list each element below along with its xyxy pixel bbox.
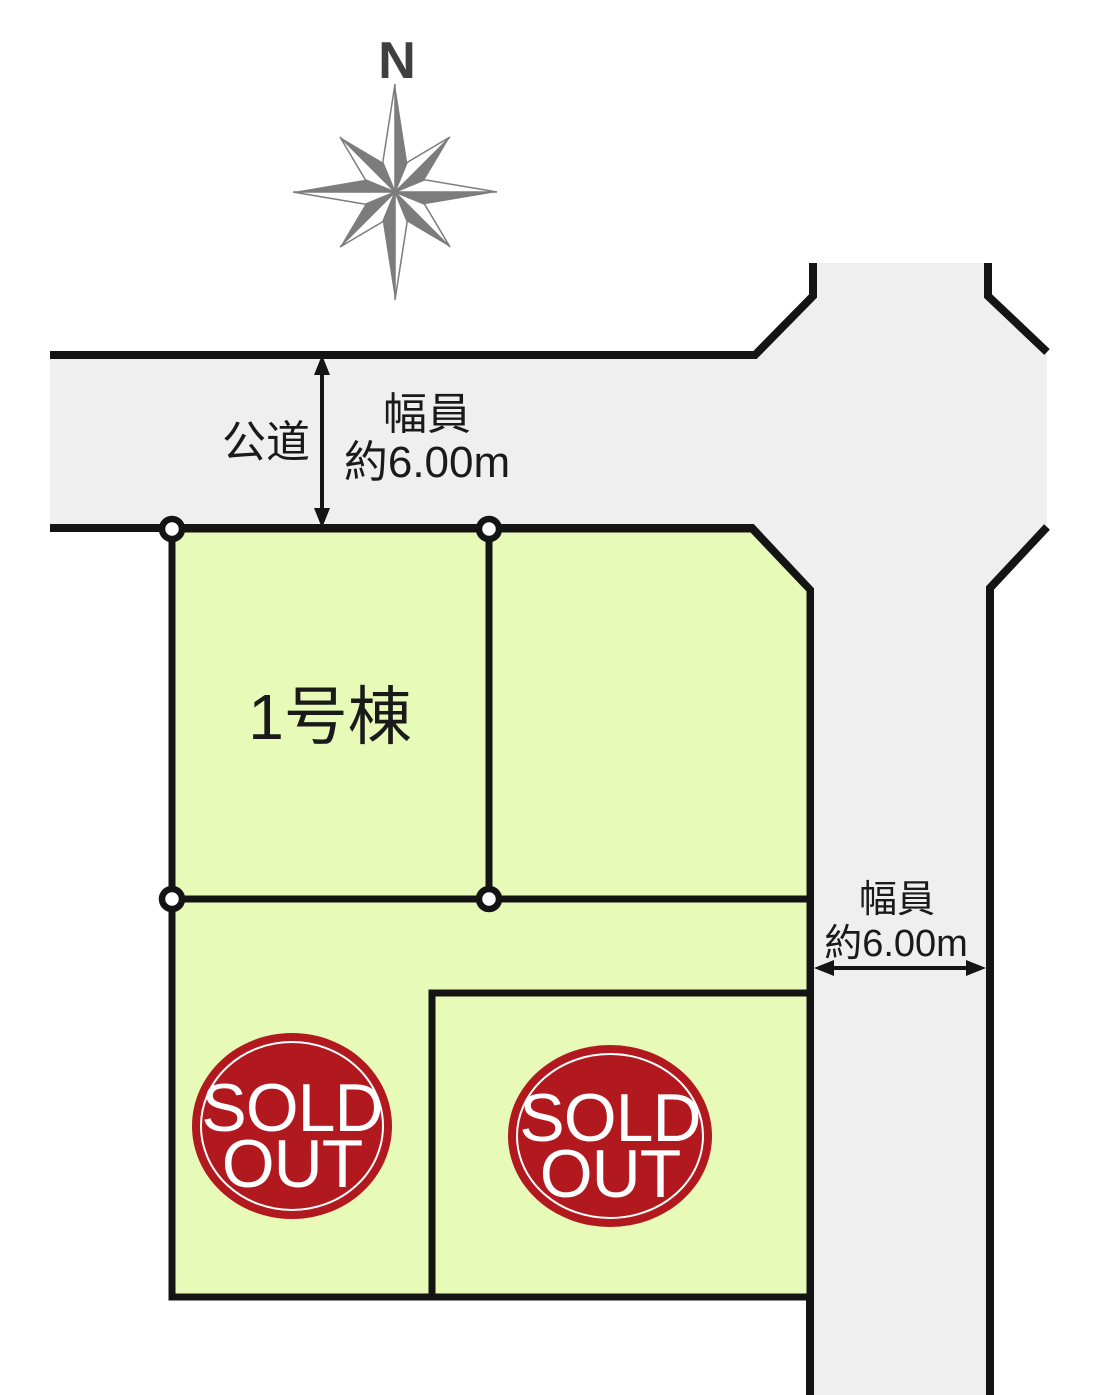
top-road-name-label: 公道 [222,418,310,467]
road-border-top-west [50,263,813,355]
sold-badge-text-line2: OUT [540,1136,681,1212]
sold-badge-lot-4: SOLD OUT [508,1045,712,1227]
lot-1: 1号棟 [172,529,489,899]
lot-2-parcel [489,529,810,899]
compass-rose-icon [293,84,497,300]
top-road-width-label-line1: 幅員 [383,390,471,439]
lot-1-label: 1号棟 [248,681,412,753]
vertex-marker [479,889,499,909]
site-plan-diagram: 1号棟 公道 幅員 約6.00m [0,0,1115,1395]
right-road-width-label-line1: 幅員 [859,879,935,921]
vertex-marker [162,889,182,909]
sold-badge-text-line2: OUT [222,1126,363,1202]
sold-badge-lot-3: SOLD OUT [192,1033,392,1219]
road-border-east-south [990,527,1047,1395]
lot-2 [489,529,810,899]
top-road-width-label-line2: 約6.00m [344,438,510,487]
right-road-width-label-line2: 約6.00m [824,923,968,965]
vertex-marker [162,519,182,539]
vertex-marker [479,519,499,539]
compass-north-label: N [378,32,416,90]
